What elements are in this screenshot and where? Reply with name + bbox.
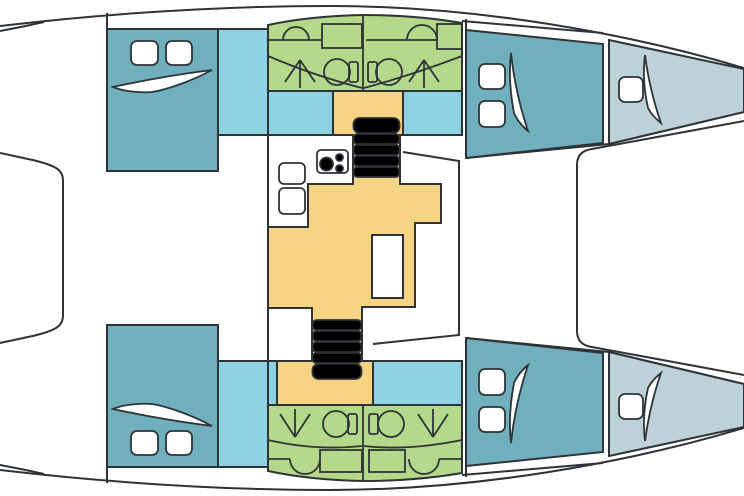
deck-hatch-icon (479, 101, 505, 127)
stair-tread (313, 353, 362, 363)
deck-hatch-icon (166, 431, 192, 455)
stove-icon (317, 150, 348, 173)
stair-tread (354, 145, 400, 155)
stair-tread (354, 134, 400, 144)
port-forward-cabin (466, 30, 603, 158)
stair-tread (354, 118, 400, 133)
deck-hatch-icon (619, 77, 643, 102)
port-companionway-stairs (354, 118, 400, 177)
stair-tread (354, 167, 400, 177)
galley-sink-icon (279, 163, 305, 184)
deck-hatch-icon (131, 431, 158, 455)
deck-hatch-icon (479, 64, 505, 89)
stove-burner-small (336, 165, 343, 172)
deck-hatch-icon (479, 369, 505, 395)
starboard-passage-band-right (373, 361, 462, 405)
catamaran-floor-plan (0, 0, 744, 496)
stair-tread (313, 331, 362, 341)
stair-tread (313, 342, 362, 352)
deck-hatch-icon (131, 41, 158, 65)
starboard-aft-cabin (107, 325, 218, 467)
port-passage-band-right (403, 91, 462, 135)
starboard-forward-cabin (466, 338, 603, 466)
starboard-companionway-stairs (313, 320, 362, 379)
port-passage (218, 29, 268, 135)
deck-hatch-icon (479, 407, 505, 432)
port-aft-cabin (107, 29, 218, 171)
stair-tread (313, 364, 362, 379)
stove-burner-small (336, 154, 343, 161)
starboard-passage (218, 361, 268, 467)
port-passage-band-left (268, 91, 333, 135)
galley-sink-icon (279, 188, 305, 214)
stove-burner-large (320, 158, 333, 171)
floor-plan-canvas (0, 0, 744, 496)
starboard-passage-band-left (268, 361, 277, 405)
stair-tread (354, 156, 400, 166)
stair-tread (313, 320, 362, 330)
deck-hatch-icon (166, 41, 192, 65)
salon-table (372, 235, 403, 298)
deck-hatch-icon (619, 394, 643, 419)
